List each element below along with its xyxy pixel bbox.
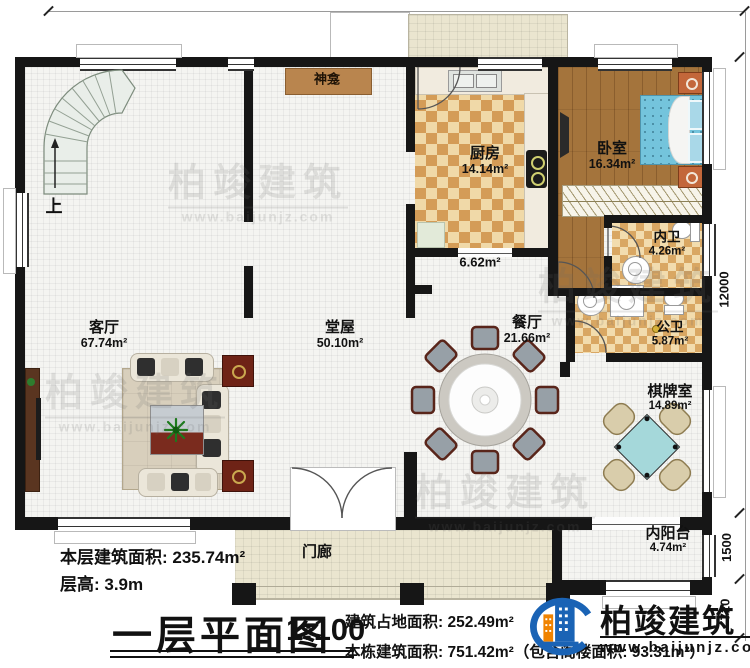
- wall-hall-dining-stub: [406, 285, 432, 294]
- kitchen-cabinet: [417, 222, 445, 248]
- room-label-kitchen: 厨房 14.14m²: [462, 145, 509, 177]
- nightstand-bottom: [678, 166, 704, 188]
- room-name: 神龛: [314, 73, 340, 88]
- stair-up-label: 上: [46, 197, 63, 217]
- sofa-cushion: [202, 439, 221, 457]
- room-name: 内阳台: [645, 525, 690, 542]
- sill-bedroom-right: [713, 68, 726, 170]
- side-table-top: [222, 355, 254, 387]
- bedroom-tv: [560, 112, 569, 158]
- wall-inner-bath-left-a: [604, 215, 612, 228]
- room-area: 67.74m²: [81, 336, 128, 350]
- room-label-shrine: 神龛: [314, 73, 340, 88]
- window-kitchen-top: [478, 57, 542, 71]
- floor-plan-canvas: 18500 12000 1500 720: [0, 0, 750, 668]
- room-label-living: 客厅 67.74m²: [81, 319, 128, 351]
- porch-post-left: [232, 583, 256, 605]
- toilet-tank: [664, 305, 684, 315]
- side-table-bottom: [222, 460, 254, 492]
- room-name: 卧室: [589, 140, 636, 157]
- room-name: 棋牌室: [647, 383, 692, 400]
- wall-chess-stub: [560, 362, 570, 377]
- room-area: 16.34m²: [589, 157, 636, 171]
- dim-line-right: [745, 11, 746, 641]
- terrace-railing: [330, 12, 410, 59]
- wall-kitchen-bottom-right: [512, 248, 558, 257]
- wall-hall-kitchen: [406, 67, 415, 152]
- room-name: 门廊: [302, 543, 332, 560]
- room-area: 14.89m²: [647, 400, 692, 413]
- sill-living-top: [76, 44, 182, 58]
- stove: [526, 150, 547, 188]
- sill-living-left: [3, 188, 16, 274]
- dim-tick: [734, 574, 745, 585]
- sofa-top: [130, 353, 214, 382]
- dim-right-balcony: 1500: [719, 533, 734, 562]
- burner: [531, 172, 545, 186]
- wall-column-porch: [404, 452, 417, 517]
- room-label-chess: 棋牌室 14.89m²: [647, 383, 692, 413]
- wall-living-hall-lower: [244, 266, 253, 318]
- stair-up-text: 上: [46, 197, 63, 216]
- brand-logo-icon: [520, 594, 598, 664]
- sofa-bottom: [138, 468, 218, 497]
- sink-basin: [453, 74, 474, 88]
- room-name: 厨房: [462, 145, 509, 162]
- wall-hall-dining: [406, 204, 415, 318]
- sill-chess-right: [713, 386, 726, 498]
- room-label-dining: 餐厅 21.66m²: [504, 314, 551, 346]
- sofa-cushion: [195, 473, 211, 491]
- sink-bowl: [628, 262, 642, 276]
- room-label-public-bath: 公卫 5.87m²: [652, 320, 688, 349]
- wall-living-hall-upper: [244, 67, 253, 222]
- room-label-balcony: 内阳台 4.74m²: [645, 525, 690, 555]
- dim-tick: [734, 52, 745, 63]
- wall-left: [15, 57, 25, 530]
- tv-screen: [36, 398, 41, 460]
- wardrobe: [562, 185, 704, 217]
- room-name: 内卫: [649, 230, 685, 246]
- sofa-cushion: [147, 473, 165, 491]
- room-area: 5.87m²: [652, 335, 688, 348]
- room-area: 4.26m²: [649, 245, 685, 258]
- footer-site-area: 建筑占地面积: 252.49m²: [345, 610, 514, 632]
- staircase: [25, 66, 150, 218]
- dim-right-main: 12000: [717, 271, 732, 307]
- nightstand-top: [678, 72, 704, 94]
- window-balcony-right: [702, 535, 716, 577]
- wall-below-wardrobe: [604, 215, 703, 223]
- room-label-bedroom: 卧室 16.34m²: [589, 140, 636, 172]
- room-label-porch: 门廊: [302, 543, 332, 560]
- brand-website: www.baijunjz.com: [600, 636, 750, 656]
- wall-kitchen-bedroom: [548, 67, 558, 296]
- window-inner-bath-right: [702, 224, 716, 276]
- corridor-area-label: 6.62m²: [459, 256, 500, 271]
- sofa-cushion: [171, 473, 189, 491]
- bath-corridor-floor: [558, 215, 604, 296]
- porch-post-middle: [400, 583, 424, 605]
- room-area: 50.10m²: [317, 336, 364, 350]
- sink-basin: [476, 74, 497, 88]
- room-area: 14.14m²: [462, 162, 509, 176]
- room-name: 公卫: [652, 320, 688, 336]
- wall-public-bath-bottom: [606, 353, 703, 362]
- footer-floor-area: 本层建筑面积: 235.74m²: [60, 543, 245, 568]
- coffee-table: [150, 405, 204, 455]
- sill-bedroom-top: [594, 44, 678, 58]
- title-underline: [110, 650, 354, 658]
- room-name: 客厅: [81, 319, 128, 336]
- sofa-cushion: [202, 415, 221, 433]
- sofa-cushion: [161, 358, 179, 376]
- dim-tick: [734, 508, 745, 519]
- kitchen-sink: [448, 70, 502, 92]
- entry-door-arcs: [284, 462, 404, 532]
- bed-blanket: [668, 96, 690, 164]
- sofa-cushion: [202, 391, 221, 409]
- room-area: 6.62m²: [459, 256, 500, 271]
- room-name: 餐厅: [504, 314, 551, 331]
- sofa-cushion: [137, 358, 155, 376]
- porch-step-line: [235, 586, 552, 587]
- room-area: 21.66m²: [504, 331, 551, 345]
- porch-floor: [235, 530, 552, 600]
- footer-floor-height: 层高: 3.9m: [60, 570, 143, 595]
- room-label-inner-bath: 内卫 4.26m²: [649, 230, 685, 259]
- room-label-hall: 堂屋 50.10m²: [317, 319, 364, 351]
- window-bedroom-top: [598, 57, 672, 71]
- room-area: 4.74m²: [645, 542, 690, 555]
- wall-public-bath-left: [566, 296, 575, 362]
- wall-bath-divider: [548, 288, 703, 296]
- sink-inner-bath: [622, 256, 650, 284]
- wall-kitchen-bottom-left: [406, 248, 458, 257]
- sofa-cushion: [185, 358, 203, 376]
- sink-bowl: [583, 294, 597, 308]
- burner: [531, 156, 545, 170]
- terrace: [408, 14, 568, 59]
- window-hall-top: [228, 57, 254, 71]
- room-name: 堂屋: [317, 319, 364, 336]
